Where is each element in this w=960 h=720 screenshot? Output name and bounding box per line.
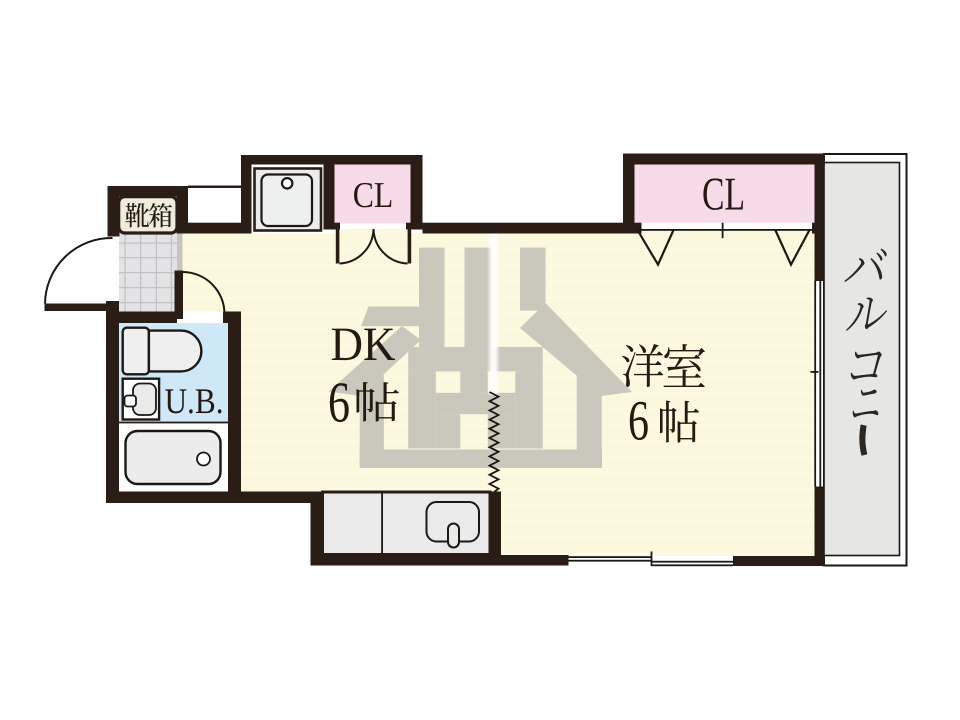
svg-text:DK: DK xyxy=(331,318,396,371)
svg-text:6: 6 xyxy=(328,370,350,435)
svg-text:U.B.: U.B. xyxy=(165,381,224,421)
svg-text:CL: CL xyxy=(702,169,745,221)
svg-text:CL: CL xyxy=(353,174,394,215)
svg-text:6: 6 xyxy=(628,390,649,453)
